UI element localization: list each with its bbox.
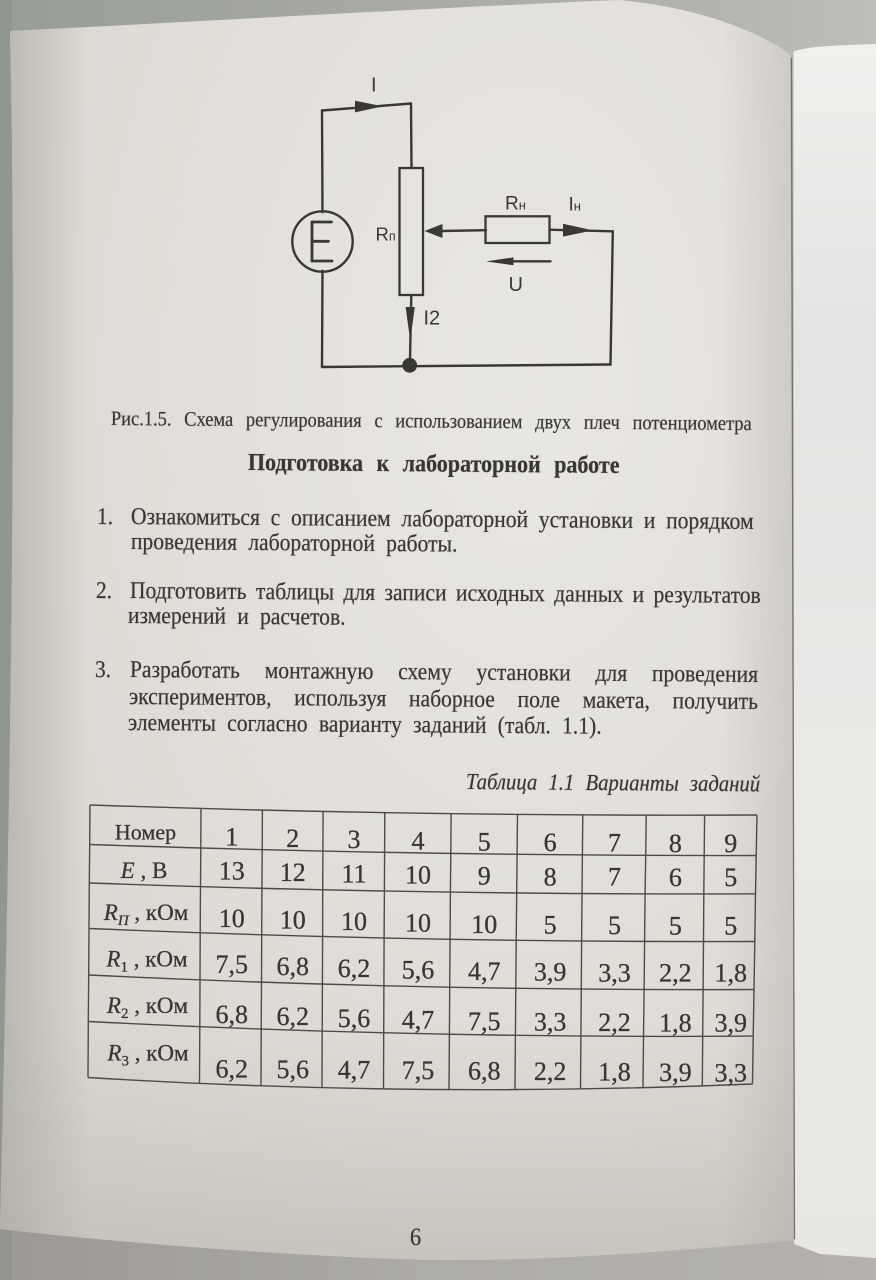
svg-text:3,9: 3,9 bbox=[534, 958, 567, 987]
svg-text:6: 6 bbox=[669, 863, 682, 892]
svg-text:E , В: E , В bbox=[120, 858, 168, 883]
svg-text:11: 11 bbox=[341, 859, 366, 888]
svg-text:1,8: 1,8 bbox=[715, 959, 748, 988]
svg-text:R1 , кОм: R1 , кОм bbox=[105, 947, 188, 976]
svg-text:4: 4 bbox=[412, 826, 425, 855]
svg-text:Iн: Iн bbox=[569, 195, 581, 216]
svg-text:13: 13 bbox=[219, 857, 245, 886]
svg-text:2: 2 bbox=[286, 824, 299, 853]
svg-text:6,2: 6,2 bbox=[277, 1002, 310, 1031]
svg-text:9: 9 bbox=[724, 829, 737, 858]
svg-text:1,8: 1,8 bbox=[598, 1057, 631, 1086]
svg-text:10: 10 bbox=[405, 909, 431, 938]
svg-text:1,8: 1,8 bbox=[659, 1008, 692, 1037]
svg-text:Rн: Rн bbox=[505, 194, 526, 215]
svg-text:RП , кОм: RП , кОм bbox=[103, 900, 189, 929]
svg-text:5,6: 5,6 bbox=[402, 956, 435, 985]
svg-text:U: U bbox=[509, 274, 523, 296]
svg-text:3,3: 3,3 bbox=[534, 1008, 567, 1037]
svg-text:6,2: 6,2 bbox=[338, 954, 371, 983]
svg-text:5: 5 bbox=[724, 863, 737, 892]
svg-text:3,9: 3,9 bbox=[715, 1008, 748, 1037]
svg-text:4,7: 4,7 bbox=[338, 1056, 371, 1085]
svg-text:5,6: 5,6 bbox=[277, 1055, 310, 1084]
svg-text:3,3: 3,3 bbox=[598, 958, 631, 987]
svg-text:10: 10 bbox=[405, 861, 431, 890]
svg-text:7: 7 bbox=[608, 829, 621, 858]
svg-text:5: 5 bbox=[544, 911, 557, 940]
svg-text:3,3: 3,3 bbox=[715, 1058, 748, 1087]
svg-text:4,7: 4,7 bbox=[402, 1006, 435, 1035]
svg-text:4,7: 4,7 bbox=[468, 957, 501, 986]
svg-text:6,8: 6,8 bbox=[468, 1057, 501, 1086]
svg-text:12: 12 bbox=[280, 858, 306, 887]
svg-text:5,6: 5,6 bbox=[338, 1004, 371, 1033]
svg-text:2,2: 2,2 bbox=[659, 959, 692, 988]
svg-text:5: 5 bbox=[724, 912, 737, 941]
svg-text:7,5: 7,5 bbox=[468, 1007, 501, 1036]
svg-text:10: 10 bbox=[219, 904, 245, 933]
svg-text:1: 1 bbox=[225, 822, 238, 851]
svg-text:3,9: 3,9 bbox=[659, 1058, 692, 1087]
svg-text:9: 9 bbox=[478, 862, 491, 891]
svg-text:8: 8 bbox=[669, 829, 682, 858]
svg-text:7: 7 bbox=[608, 863, 621, 892]
svg-text:2,2: 2,2 bbox=[598, 1008, 631, 1037]
svg-text:7,5: 7,5 bbox=[402, 1056, 435, 1085]
svg-text:8: 8 bbox=[544, 862, 557, 891]
svg-text:6,2: 6,2 bbox=[215, 1055, 248, 1084]
svg-text:10: 10 bbox=[341, 907, 367, 936]
svg-text:I: I bbox=[371, 75, 377, 97]
svg-text:R2 , кОм: R2 , кОм bbox=[106, 993, 189, 1022]
svg-text:R3 , кОм: R3 , кОм bbox=[106, 1041, 189, 1070]
svg-text:I2: I2 bbox=[424, 308, 441, 330]
svg-text:6,8: 6,8 bbox=[277, 952, 310, 981]
svg-text:10: 10 bbox=[280, 906, 306, 935]
svg-text:5: 5 bbox=[669, 912, 682, 941]
svg-text:3: 3 bbox=[348, 825, 361, 854]
svg-text:6,8: 6,8 bbox=[215, 1000, 248, 1029]
svg-text:10: 10 bbox=[471, 910, 497, 939]
svg-text:5: 5 bbox=[608, 911, 621, 940]
svg-text:2,2: 2,2 bbox=[534, 1057, 567, 1086]
svg-text:Номер: Номер bbox=[115, 820, 176, 845]
svg-text:7,5: 7,5 bbox=[215, 950, 248, 979]
svg-text:5: 5 bbox=[478, 827, 491, 856]
svg-text:6: 6 bbox=[544, 828, 557, 857]
